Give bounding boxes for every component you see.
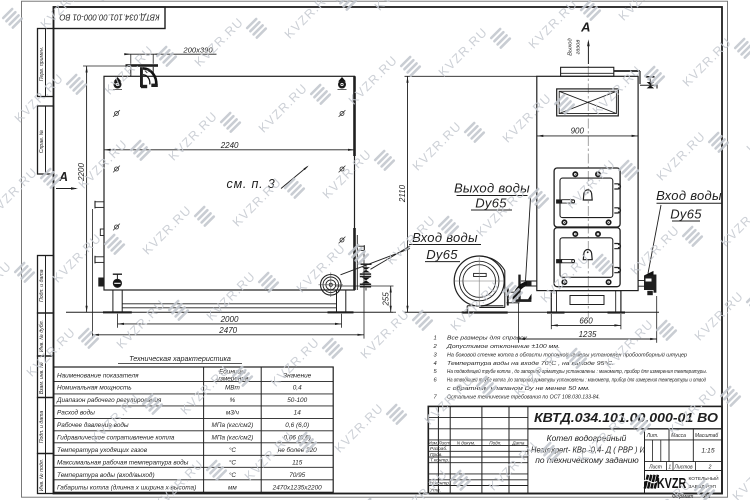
svg-text:Максимальная рабочая температу: Максимальная рабочая температура воды — [57, 458, 189, 466]
svg-text:Инв. № дубл.: Инв. № дубл. — [39, 320, 45, 352]
svg-text:°С: °С — [229, 458, 237, 466]
svg-text:Лист: Лист — [648, 464, 662, 470]
svg-text:мм: мм — [228, 484, 237, 491]
svg-text:0,6 (6,0): 0,6 (6,0) — [285, 422, 309, 429]
svg-text:Техническая характеристика: Техническая характеристика — [129, 354, 231, 363]
svg-text:2470: 2470 — [218, 326, 237, 335]
svg-text:0,4: 0,4 — [293, 385, 302, 392]
svg-text:Пров.: Пров. — [430, 452, 443, 458]
svg-text:660: 660 — [579, 317, 593, 326]
svg-text:Номинальная мощность: Номинальная мощность — [57, 385, 132, 392]
svg-text:2110: 2110 — [398, 184, 407, 203]
svg-text:А: А — [580, 20, 590, 35]
svg-text:Т.контр.: Т.контр. — [430, 458, 449, 464]
svg-text:1235: 1235 — [579, 330, 597, 339]
svg-text:2240: 2240 — [220, 141, 239, 150]
svg-text:КВТД.034.101.00.000-01 ВО: КВТД.034.101.00.000-01 ВО — [59, 13, 159, 22]
svg-text:70/95: 70/95 — [289, 472, 305, 479]
svg-text:2000: 2000 — [220, 315, 239, 324]
svg-text:Вход воды: Вход воды — [656, 188, 722, 203]
svg-text:50-100: 50-100 — [287, 397, 307, 404]
svg-text:Подп. и дата: Подп. и дата — [39, 269, 45, 302]
svg-text:4: 4 — [434, 361, 437, 367]
svg-text:1:15: 1:15 — [701, 447, 714, 454]
svg-text:МПа (кгс/см2): МПа (кгс/см2) — [212, 435, 254, 442]
svg-text:м3/ч: м3/ч — [226, 410, 240, 417]
svg-text:Листов: Листов — [673, 464, 693, 470]
svg-text:N докум.: N докум. — [457, 440, 476, 445]
svg-text:Температура уходящих газов: Температура уходящих газов — [57, 446, 148, 454]
svg-text:МПа (кгс/см2): МПа (кгс/см2) — [212, 422, 254, 429]
svg-text:1: 1 — [434, 335, 437, 341]
svg-text:255: 255 — [381, 292, 390, 307]
svg-text:Лит.: Лит. — [646, 433, 659, 439]
svg-text:Разраб.: Разраб. — [430, 446, 447, 452]
svg-text:Наименование показателя: Наименование показателя — [57, 372, 139, 379]
svg-text:Расход воды: Расход воды — [57, 409, 95, 417]
svg-text:Инв. № подл.: Инв. № подл. — [39, 459, 45, 491]
svg-text:Дата: Дата — [511, 440, 525, 445]
svg-text:1: 1 — [668, 464, 671, 470]
svg-text:Лист: Лист — [437, 440, 450, 445]
svg-text:Выход: Выход — [567, 38, 573, 56]
svg-text:газов: газов — [575, 40, 581, 55]
svg-text:Подп. и дата: Подп. и дата — [39, 411, 45, 444]
svg-text:МВт: МВт — [225, 385, 241, 392]
svg-text:%: % — [230, 397, 236, 404]
svg-text:Dy65: Dy65 — [426, 247, 458, 262]
svg-text:Температура воды (вход/выход): Температура воды (вход/выход) — [57, 471, 155, 479]
svg-text:А: А — [58, 170, 68, 184]
svg-text:Dy65: Dy65 — [670, 207, 702, 222]
svg-text:Справ. №: Справ. № — [39, 129, 45, 153]
svg-text:Все размеры для справок: Все размеры для справок — [447, 335, 527, 341]
svg-text:Температура воды на входе 70°: Температура воды на входе 70°С , на выхо… — [447, 361, 614, 367]
svg-text:Масштаб: Масштаб — [695, 433, 719, 439]
svg-text:115: 115 — [292, 459, 303, 466]
svg-text:°С: °С — [229, 471, 237, 479]
svg-text:Допустимое отклонение ±100 мм: Допустимое отклонение ±100 мм. — [446, 344, 560, 350]
svg-text:Подп.: Подп. — [489, 440, 501, 445]
svg-text:Перв. примен.: Перв. примен. — [39, 47, 45, 81]
svg-text:2470х1235х2200: 2470х1235х2200 — [272, 484, 322, 491]
svg-text:900: 900 — [571, 127, 585, 136]
svg-text:Гидравлическое сопративление к: Гидравлическое сопративление котла — [57, 434, 175, 442]
svg-text:14: 14 — [294, 410, 302, 417]
svg-text:°С: °С — [229, 446, 237, 454]
svg-text:Изм.: Изм. — [428, 440, 438, 445]
svg-text:2: 2 — [708, 464, 712, 470]
svg-text:На подводящей трубе котла , д: На подводящей трубе котла , до запорной … — [447, 368, 707, 375]
